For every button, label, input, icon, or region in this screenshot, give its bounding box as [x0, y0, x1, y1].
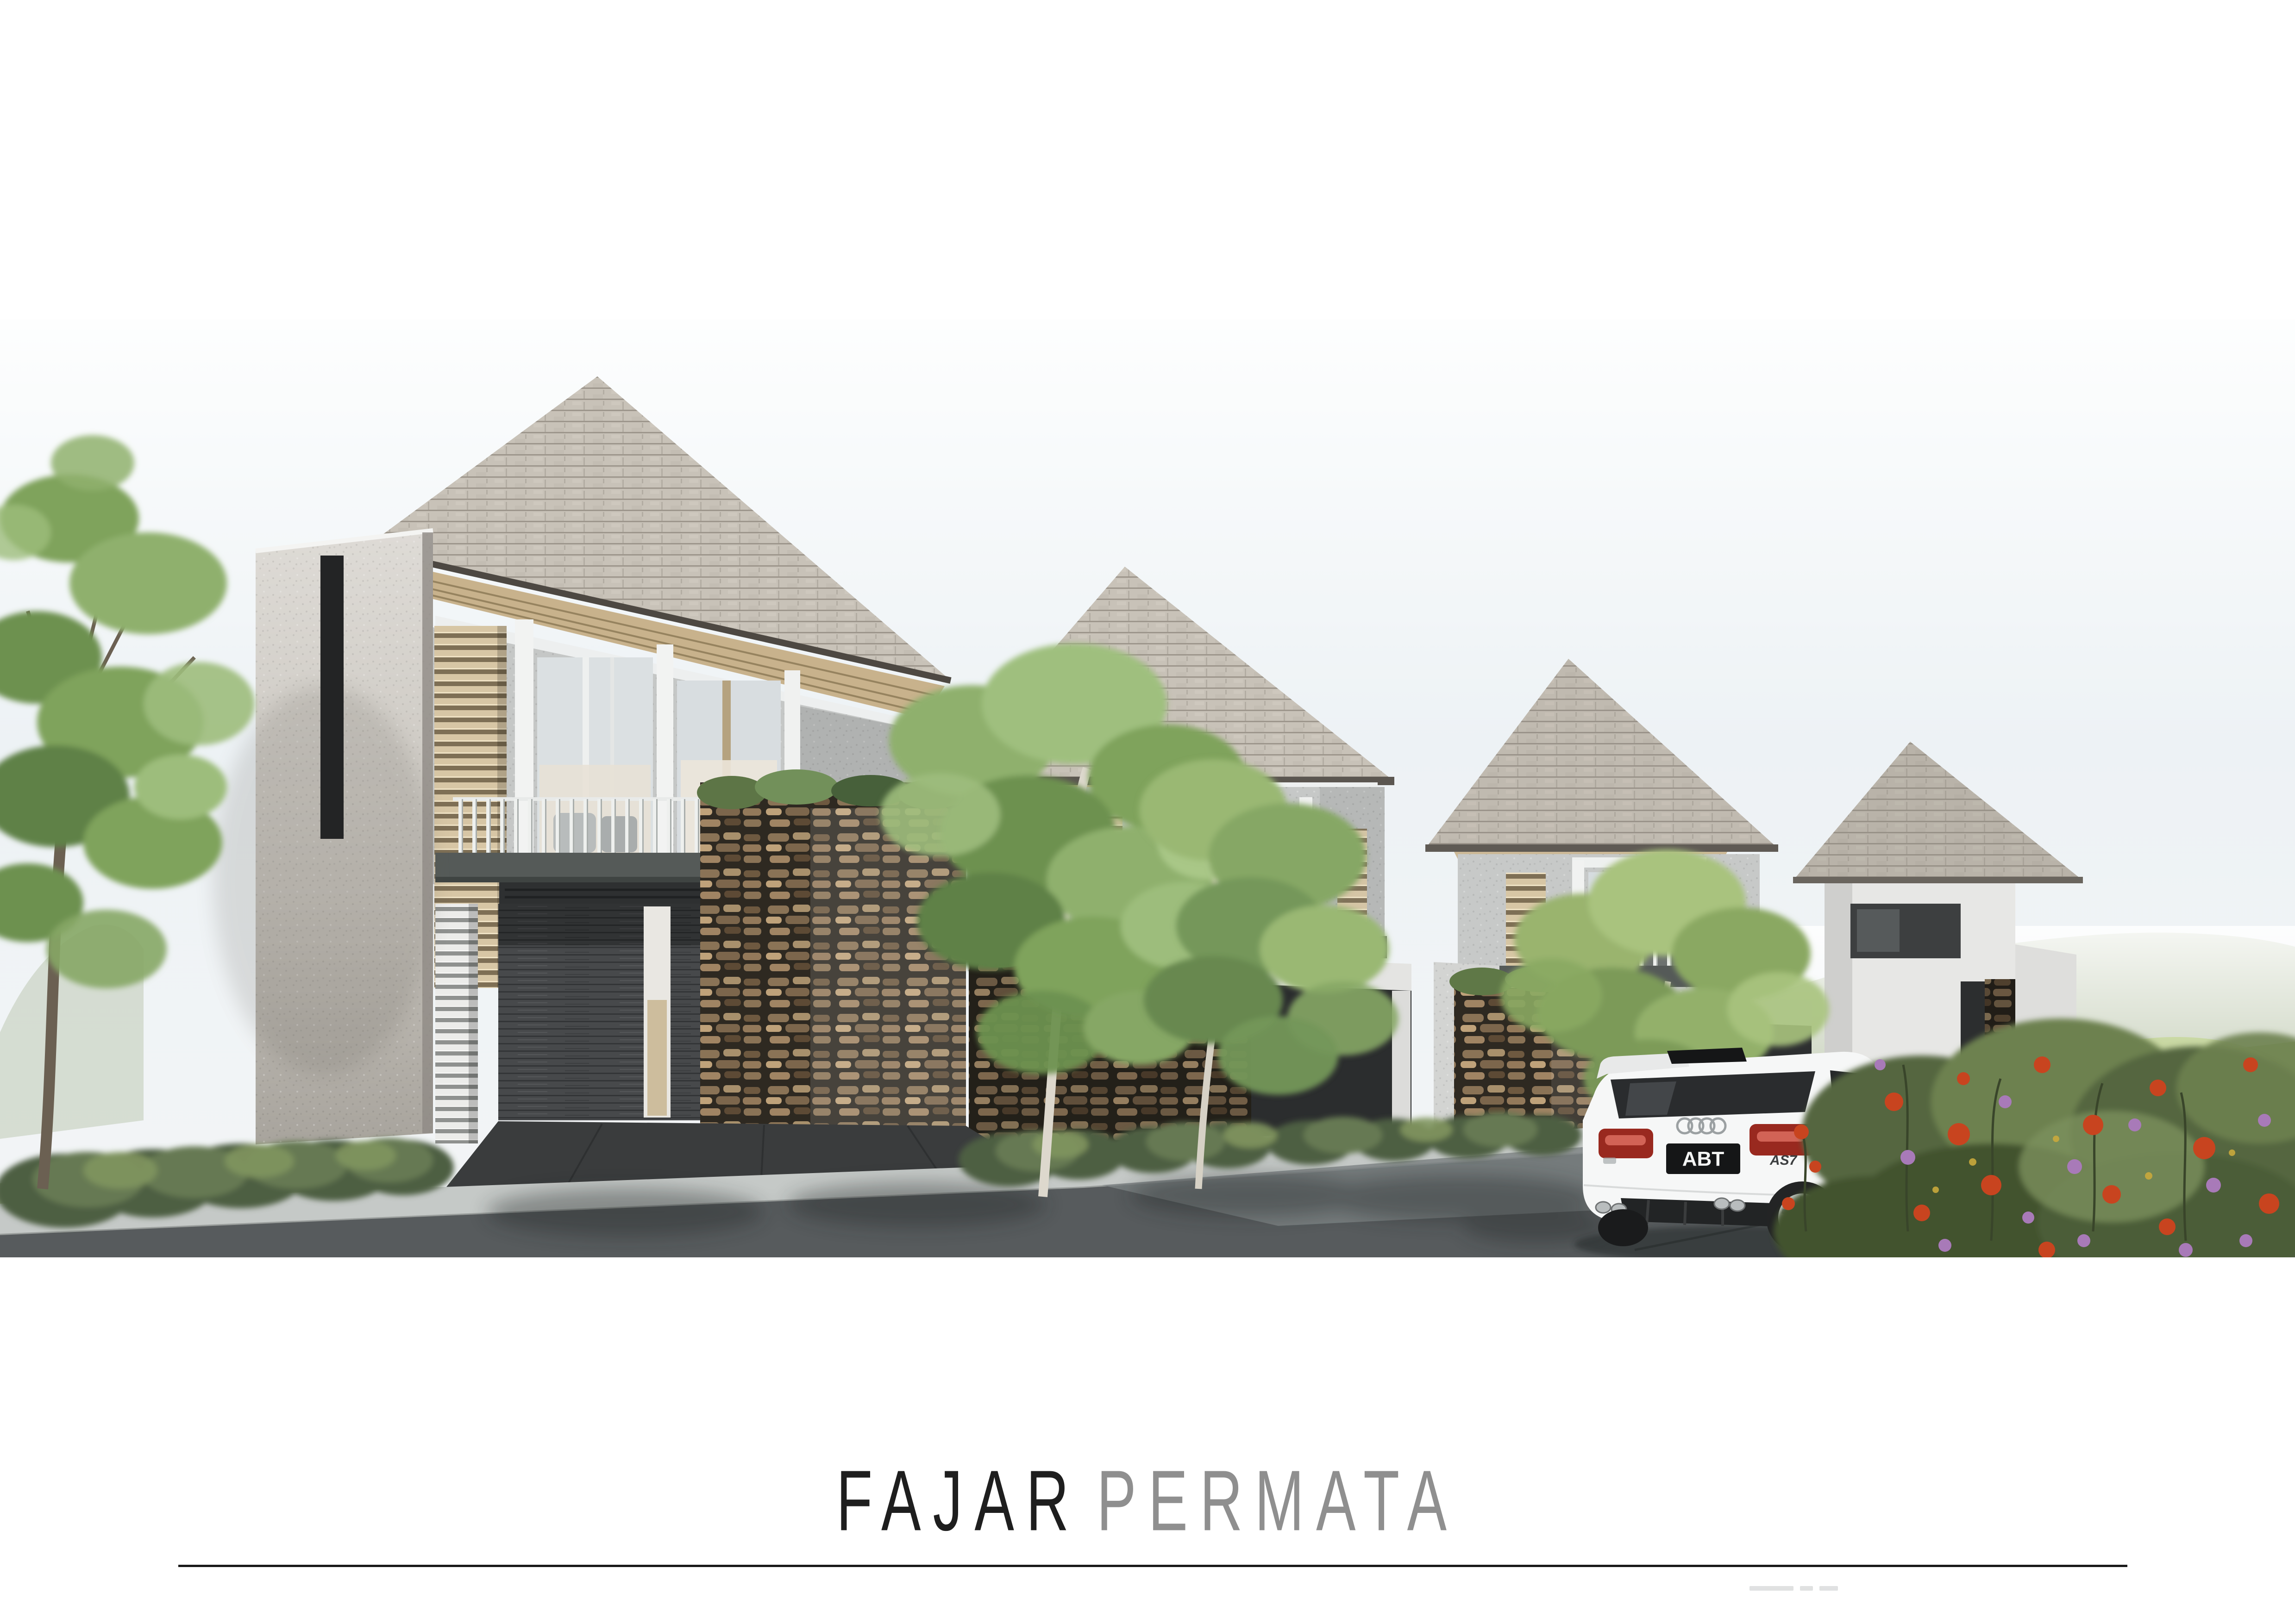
- car-wheel-rear-left: [1598, 1209, 1648, 1246]
- project-title-primary: FAJAR: [836, 1458, 1081, 1544]
- render-scene: ABT AS7: [0, 319, 2295, 1257]
- car-model-badge: AS7: [1769, 1153, 1798, 1168]
- house-1-wall-slot: [320, 556, 344, 839]
- architectural-rendering: ABT AS7: [0, 319, 2295, 1257]
- car-abt-mark: [1603, 1157, 1616, 1164]
- car-plate-text: ABT: [1682, 1148, 1724, 1170]
- project-title-secondary: PERMATA: [1097, 1458, 1459, 1544]
- presentation-sheet: ABT AS7: [0, 0, 2295, 1624]
- title-divider-line: [178, 1565, 2127, 1567]
- project-title: FAJAR PERMATA: [0, 1430, 2295, 1573]
- faint-watermark: [1749, 1586, 1888, 1593]
